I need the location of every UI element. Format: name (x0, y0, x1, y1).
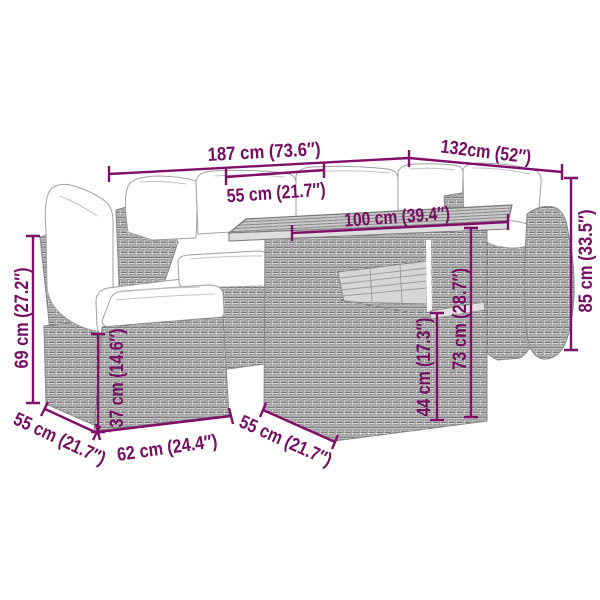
svg-text:73 cm (28.7″): 73 cm (28.7″) (450, 268, 471, 370)
svg-text:44 cm (17.3″): 44 cm (17.3″) (414, 318, 435, 417)
svg-text:85 cm (33.5″): 85 cm (33.5″) (576, 210, 597, 313)
svg-text:69 cm (27.2″): 69 cm (27.2″) (12, 268, 33, 369)
svg-text:37 cm (14.6″): 37 cm (14.6″) (107, 329, 128, 428)
